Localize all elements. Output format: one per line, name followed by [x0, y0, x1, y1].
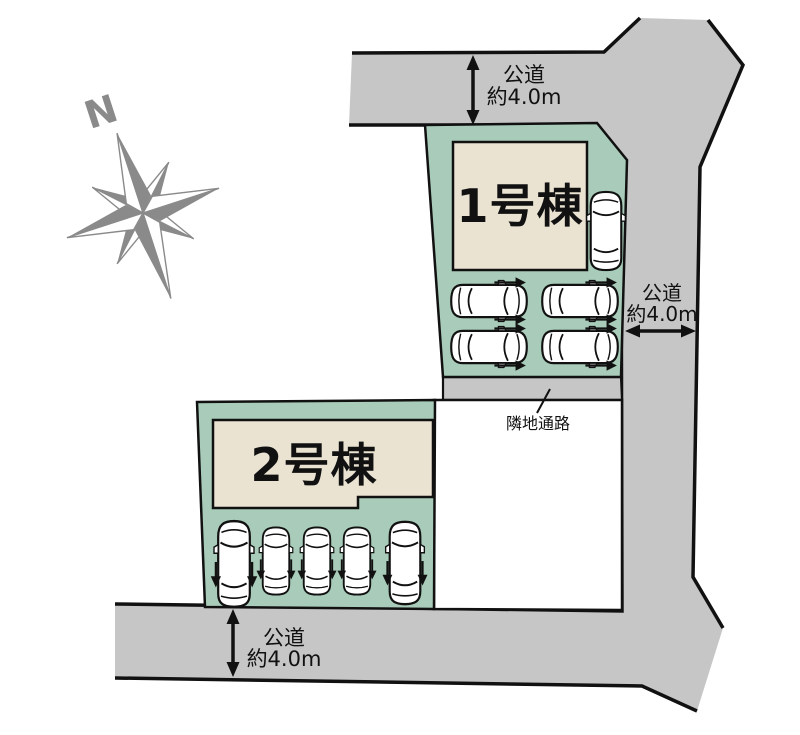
north-label: N: [79, 86, 123, 138]
plot-2-parking: [211, 521, 428, 607]
car-icon: [542, 323, 618, 371]
car-icon: [383, 522, 428, 604]
car-icon: [587, 192, 626, 270]
car-icon: [257, 527, 296, 594]
car-icon: [542, 277, 618, 325]
car-icon: [338, 527, 377, 594]
road-edge-top: [352, 18, 640, 53]
building-2-label: 2号棟: [250, 438, 377, 492]
car-icon: [298, 527, 337, 594]
site-plan-svg: 公道 約4.0m 公道 約4.0m 公道 約4.0m 隣地通路 1号棟 2号棟: [0, 0, 800, 735]
top-road-width-label: 約4.0m: [487, 85, 562, 109]
car-icon: [451, 323, 527, 371]
building-1-label: 1号棟: [456, 179, 583, 233]
passage-label: 隣地通路: [506, 414, 570, 433]
bottom-road-width-label: 約4.0m: [247, 647, 322, 671]
car-icon: [211, 521, 258, 607]
site-plan-diagram: 公道 約4.0m 公道 約4.0m 公道 約4.0m 隣地通路 1号棟 2号棟: [0, 0, 800, 735]
neighbor-passage-strip: [443, 377, 622, 400]
compass-rose-icon: [41, 108, 247, 323]
right-road-width-label: 約4.0m: [626, 302, 697, 326]
top-road-name-label: 公道: [503, 63, 545, 87]
car-icon: [451, 277, 527, 325]
